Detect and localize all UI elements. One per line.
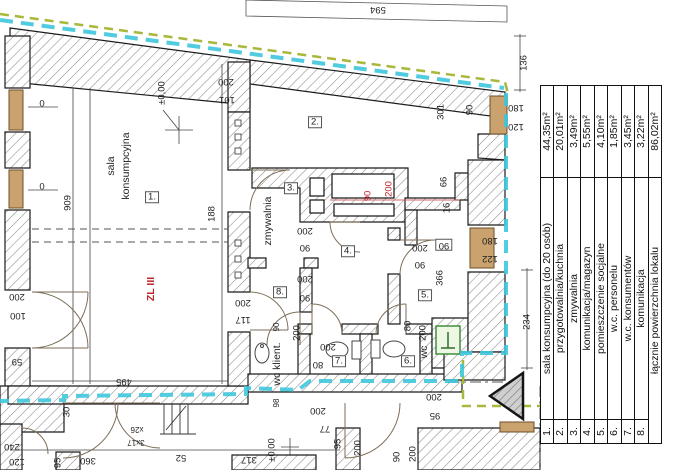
legend-table: 1.sala konsumpcyjna (do 20 osób)44,35m²2… <box>540 85 662 444</box>
toilet-icon <box>326 342 348 358</box>
legend-name: pomieszczenie socjalne <box>594 178 607 420</box>
toilet-icon <box>352 341 361 359</box>
window-icon <box>470 228 494 268</box>
legend-no: 7. <box>621 420 634 444</box>
walls-layer <box>0 28 540 470</box>
legend-body: 1.sala konsumpcyjna (do 20 osób)44,35m²2… <box>541 86 662 444</box>
floor-plan-page: 5942001011361801203019090900188±0,00sala… <box>0 0 699 470</box>
legend-area: 1,85m² <box>608 86 621 178</box>
legend-name: komunikacja/magazyn <box>581 178 594 420</box>
legend-row: 5.pomieszczenie socjalne4,10m² <box>594 86 607 444</box>
legend-area: 5,55m² <box>581 86 594 178</box>
legend-row: 6.w.c. personelu1,85m² <box>608 86 621 444</box>
dashed-beam-lines <box>32 229 228 242</box>
stairs <box>160 404 196 434</box>
legend-row: łącznie powierzchnia lokalu86,02m² <box>648 86 662 444</box>
legend-no: 6. <box>608 420 621 444</box>
legend-no: 1. <box>541 420 554 444</box>
legend-name: zmywalnia <box>567 178 580 420</box>
legend-no: 3. <box>567 420 580 444</box>
washbasin-tap-icon <box>261 345 264 348</box>
legend-name: sala konsumpcyjna (do 20 osób) <box>541 178 554 420</box>
legend-area: 3,22m² <box>635 86 648 178</box>
legend-row: 3.zmywalnia3,49m² <box>567 86 580 444</box>
toilet-icon <box>371 340 380 358</box>
toilet-icon <box>383 341 405 357</box>
legend-no: 8. <box>635 420 648 444</box>
legend-row: 8.komunikacja3,22m² <box>635 86 648 444</box>
window-icon <box>9 170 23 208</box>
legend-name: komunikacja <box>635 178 648 420</box>
legend-area: 3,45m² <box>621 86 634 178</box>
kitchen-equipment <box>310 174 394 216</box>
utility-panel-icon <box>436 326 460 354</box>
legend-name: w.c. konsumentów <box>621 178 634 420</box>
legend-area: 3,49m² <box>567 86 580 178</box>
legend-name: w.c. personelu <box>608 178 621 420</box>
legend-area: 4,10m² <box>594 86 607 178</box>
legend-row: 2.przygotowalnia/kuchnia20,01m² <box>554 86 567 444</box>
legend-row: 7.w.c. konsumentów3,45m² <box>621 86 634 444</box>
legend-no: 2. <box>554 420 567 444</box>
window-icon <box>9 90 23 130</box>
legend-area: 44,35m² <box>541 86 554 178</box>
legend-name: przygotowalnia/kuchnia <box>554 178 567 420</box>
sanitary-fixtures <box>255 340 405 363</box>
legend-no: 4. <box>581 420 594 444</box>
window-icon <box>500 422 534 432</box>
legend-name: łącznie powierzchnia lokalu <box>648 178 662 444</box>
legend-table-rotated: 1.sala konsumpcyjna (do 20 osób)44,35m²2… <box>540 86 662 444</box>
legend-area: 86,02m² <box>648 86 662 178</box>
legend-area: 20,01m² <box>554 86 567 178</box>
legend-row: 1.sala konsumpcyjna (do 20 osób)44,35m² <box>541 86 554 444</box>
legend-no: 5. <box>594 420 607 444</box>
legend-row: 4.komunikacja/magazyn5,55m² <box>581 86 594 444</box>
